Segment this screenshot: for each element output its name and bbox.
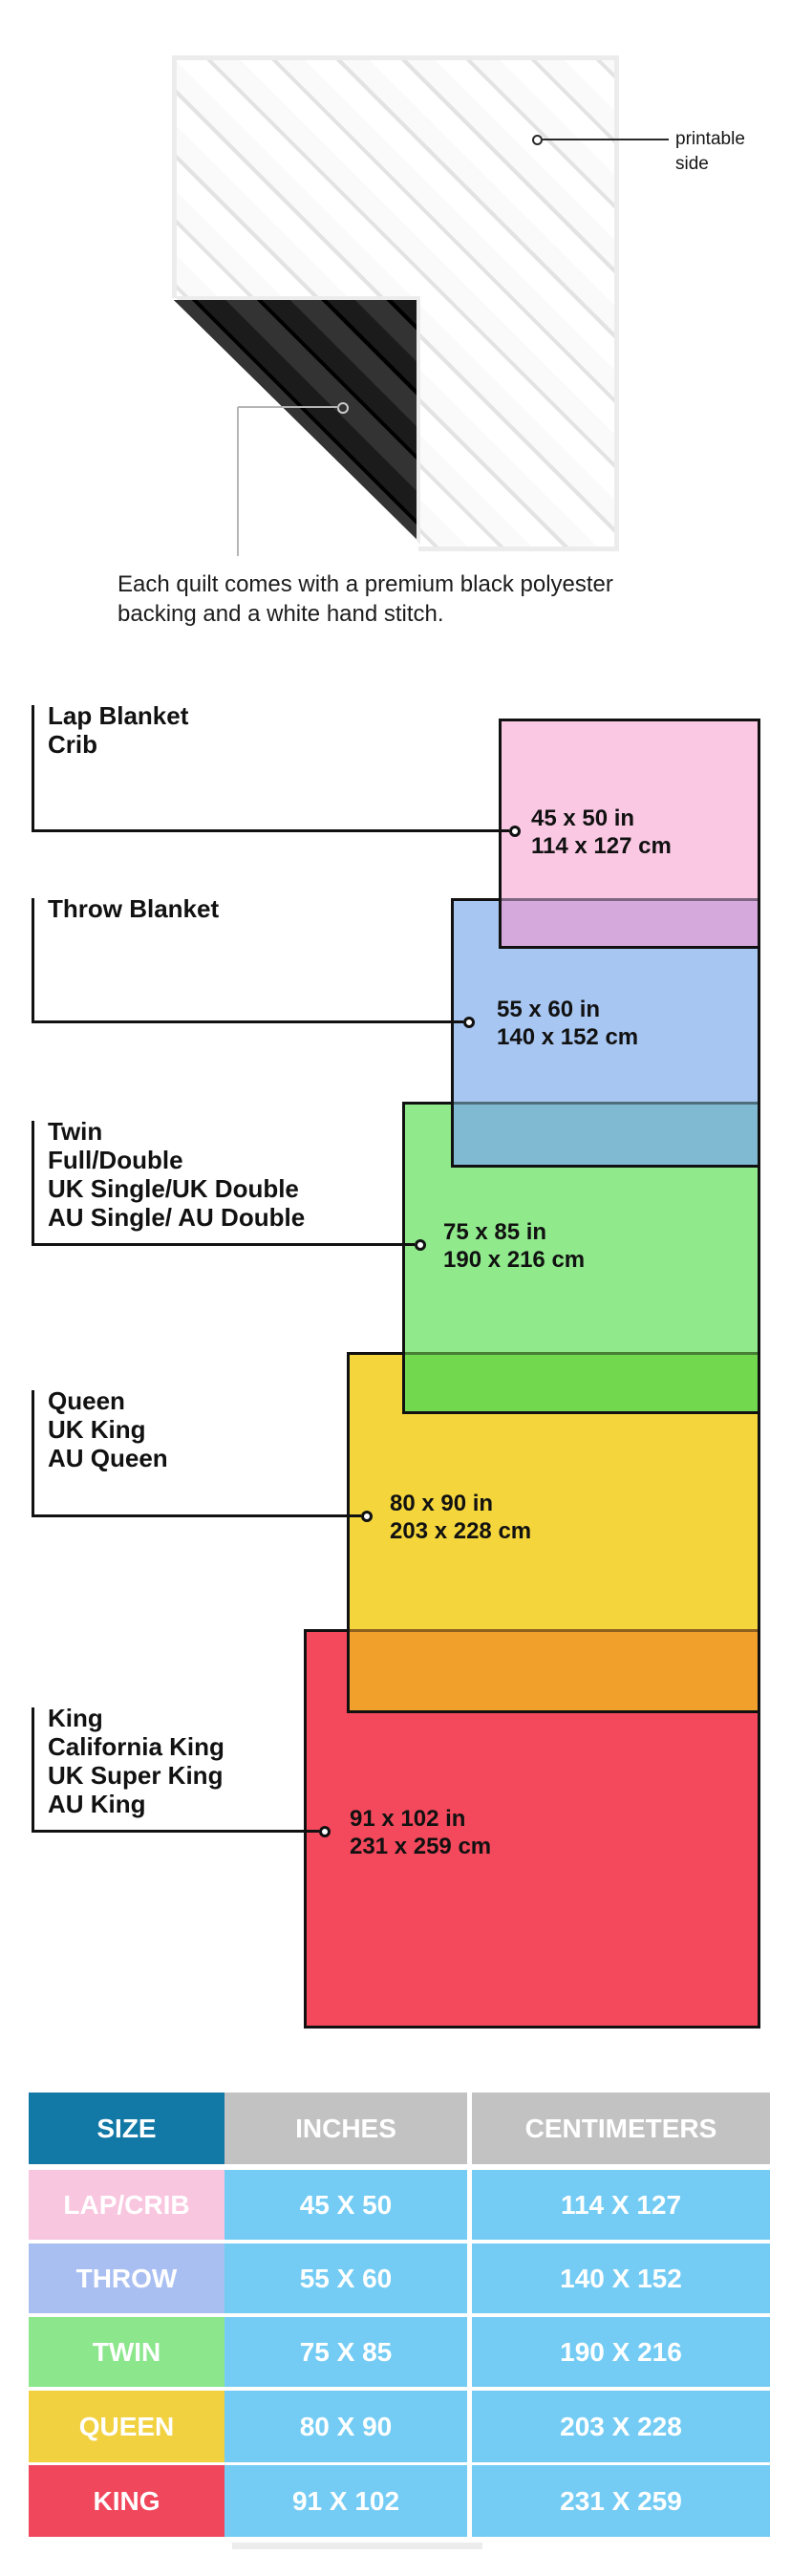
table-row-lap-size: LAP/CRIB (29, 2170, 224, 2240)
size-text-queen: 80 x 90 in 203 x 228 cm (390, 1490, 531, 1545)
table-row-lap-inches: 45 X 50 (224, 2170, 467, 2240)
table-row-twin-size: TWIN (29, 2317, 224, 2387)
label-king-line1: King (48, 1704, 224, 1732)
size-text-king: 91 x 102 in 231 x 259 cm (350, 1805, 491, 1860)
leader-horizontal-king (32, 1830, 319, 1833)
label-twin-line1: Twin (48, 1117, 305, 1146)
printable-side-label: printable side (675, 127, 745, 177)
overlap-band-queen-king (350, 1629, 758, 1710)
label-lap-crib-line1: Lap Blanket (48, 701, 188, 730)
leader-vertical-king (32, 1707, 34, 1832)
table-row-lap-cm-text: 114 X 127 (561, 2190, 681, 2221)
table-row-queen-size: QUEEN (29, 2391, 224, 2462)
table-header-size: SIZE (29, 2093, 224, 2164)
leader-horizontal-twin (32, 1243, 415, 1246)
table-row-throw-size-text: THROW (76, 2264, 178, 2294)
table-row-twin-inches: 75 X 85 (224, 2317, 467, 2387)
size-text-queen-cm: 203 x 228 cm (390, 1517, 531, 1545)
table-row-king-size: KING (29, 2465, 224, 2537)
table-header-inches-text: INCHES (295, 2114, 396, 2144)
quilt-caption-line2: backing and a white hand stitch. (118, 599, 613, 629)
table-row-throw-cm-text: 140 X 152 (560, 2264, 682, 2294)
table-row-lap-cm: 114 X 127 (472, 2170, 770, 2240)
table-row-throw-size: THROW (29, 2243, 224, 2313)
size-text-twin-in: 75 x 85 in (443, 1218, 585, 1246)
table-header-size-text: SIZE (96, 2114, 156, 2144)
size-text-queen-in: 80 x 90 in (390, 1490, 531, 1517)
leader-dot-twin (415, 1239, 426, 1251)
label-twin-line2: Full/Double (48, 1146, 305, 1174)
label-king-line2: California King (48, 1732, 224, 1761)
label-throw-line1: Throw Blanket (48, 894, 219, 923)
leader-dot-lap (509, 826, 521, 837)
table-row-king-cm-text: 231 X 259 (560, 2486, 682, 2517)
table-row-throw-cm: 140 X 152 (472, 2243, 770, 2313)
size-text-lap-in: 45 x 50 in (531, 805, 672, 832)
table-row-twin-cm: 190 X 216 (472, 2317, 770, 2387)
quilt-caption-line1: Each quilt comes with a premium black po… (118, 569, 613, 599)
leader-horizontal-lap (32, 829, 509, 832)
table-row-twin-size-text: TWIN (93, 2337, 161, 2368)
table-row-lap-inches-text: 45 X 50 (300, 2190, 393, 2221)
size-text-lap: 45 x 50 in 114 x 127 cm (531, 805, 672, 860)
size-text-twin-cm: 190 x 216 cm (443, 1246, 585, 1274)
size-text-throw-cm: 140 x 152 cm (497, 1023, 638, 1051)
leader-vertical-lap (32, 705, 34, 831)
label-twin-line3: UK Single/UK Double (48, 1174, 305, 1203)
label-king: King California King UK Super King AU Ki… (48, 1704, 224, 1818)
leader-dot-queen (361, 1511, 373, 1522)
table-row-lap-size-text: LAP/CRIB (63, 2190, 189, 2221)
table-row-throw-inches-text: 55 X 60 (300, 2264, 393, 2294)
label-queen-line3: AU Queen (48, 1444, 168, 1472)
backing-leader-line-horizontal (238, 406, 339, 408)
label-queen-line1: Queen (48, 1386, 168, 1415)
table-header-centimeters-text: CENTIMETERS (525, 2114, 717, 2144)
printable-side-label-line1: printable (675, 127, 745, 152)
label-king-line4: AU King (48, 1790, 224, 1818)
leader-horizontal-queen (32, 1514, 361, 1517)
table-row-king-cm: 231 X 259 (472, 2465, 770, 2537)
table-header-centimeters: CENTIMETERS (472, 2093, 770, 2164)
label-king-line3: UK Super King (48, 1761, 224, 1790)
leader-dot-throw (463, 1017, 475, 1028)
printable-side-label-line2: side (675, 152, 745, 177)
table-row-queen-inches-text: 80 X 90 (300, 2412, 393, 2442)
table-row-king-inches-text: 91 X 102 (292, 2486, 399, 2517)
overlap-band-throw-twin (454, 1102, 758, 1165)
size-text-lap-cm: 114 x 127 cm (531, 832, 672, 860)
table-header-inches: INCHES (224, 2093, 467, 2164)
size-text-twin: 75 x 85 in 190 x 216 cm (443, 1218, 585, 1274)
label-throw: Throw Blanket (48, 894, 219, 923)
table-row-queen-inches: 80 X 90 (224, 2391, 467, 2462)
leader-horizontal-throw (32, 1020, 463, 1023)
printable-side-marker (532, 135, 543, 145)
leader-vertical-throw (32, 898, 34, 1022)
table-row-king-inches: 91 X 102 (224, 2465, 467, 2537)
label-queen: Queen UK King AU Queen (48, 1386, 168, 1472)
label-twin-line4: AU Single/ AU Double (48, 1203, 305, 1232)
label-queen-line2: UK King (48, 1415, 168, 1444)
table-row-throw-inches: 55 X 60 (224, 2243, 467, 2313)
overlap-band-lap-throw (502, 898, 758, 946)
printable-side-leader-line (543, 139, 669, 140)
table-row-king-size-text: KING (94, 2486, 160, 2517)
table-shadow (232, 2543, 482, 2549)
size-text-throw: 55 x 60 in 140 x 152 cm (497, 996, 638, 1051)
leader-vertical-queen (32, 1390, 34, 1516)
size-text-king-in: 91 x 102 in (350, 1805, 491, 1833)
table-row-twin-inches-text: 75 X 85 (300, 2337, 393, 2368)
table-row-queen-size-text: QUEEN (79, 2412, 175, 2442)
quilt-size-chart-page: printable side Each quilt comes with a p… (0, 0, 791, 2576)
quilt-caption: Each quilt comes with a premium black po… (118, 569, 613, 629)
size-text-king-cm: 231 x 259 cm (350, 1833, 491, 1860)
backing-leader-line-vertical (237, 407, 239, 556)
table-row-twin-cm-text: 190 X 216 (560, 2337, 682, 2368)
size-text-throw-in: 55 x 60 in (497, 996, 638, 1023)
backing-marker (337, 402, 349, 414)
overlap-band-twin-queen (405, 1352, 758, 1411)
label-lap-crib-line2: Crib (48, 730, 188, 759)
table-row-queen-cm-text: 203 X 228 (560, 2412, 682, 2442)
table-row-queen-cm: 203 X 228 (472, 2391, 770, 2462)
leader-dot-king (319, 1826, 331, 1837)
label-lap-crib: Lap Blanket Crib (48, 701, 188, 759)
label-twin: Twin Full/Double UK Single/UK Double AU … (48, 1117, 305, 1232)
leader-vertical-twin (32, 1121, 34, 1245)
